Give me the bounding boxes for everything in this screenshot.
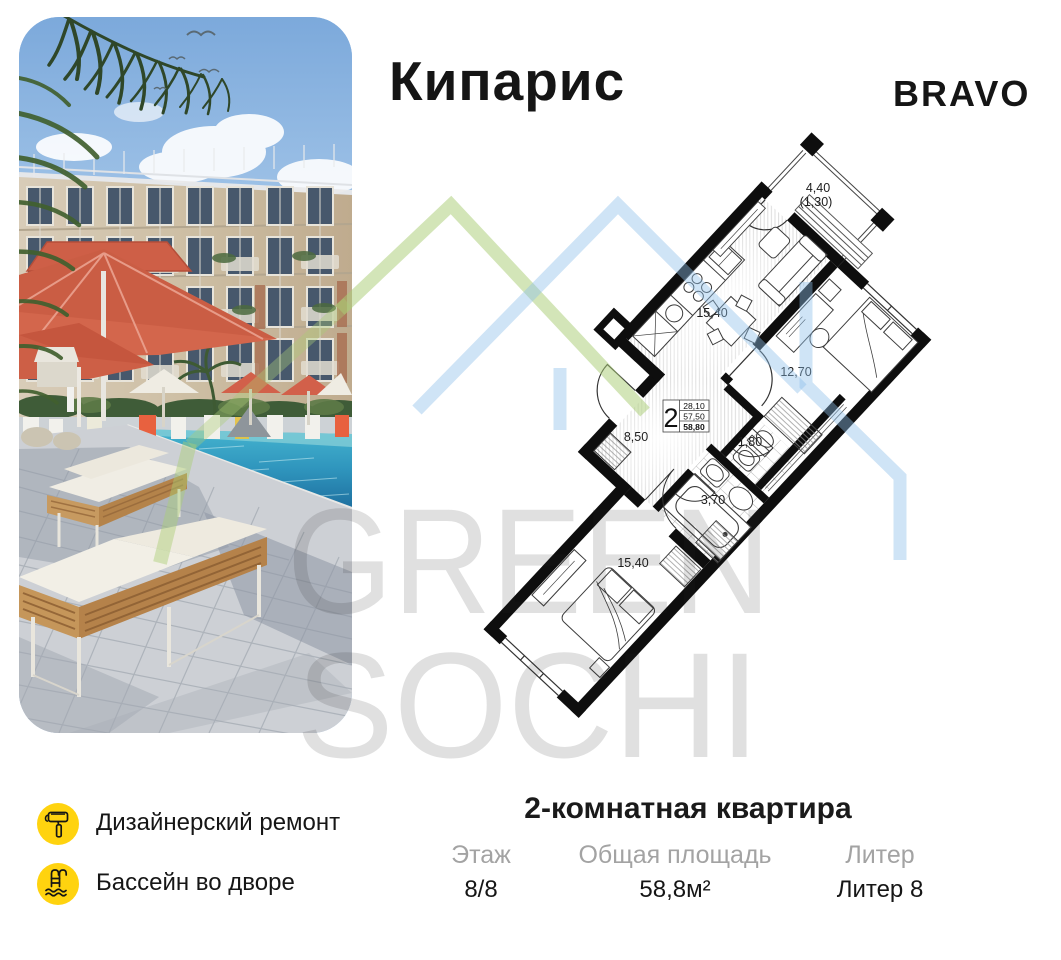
svg-text:SOCHI: SOCHI (296, 621, 760, 789)
svg-text:GREEN: GREEN (287, 477, 771, 645)
